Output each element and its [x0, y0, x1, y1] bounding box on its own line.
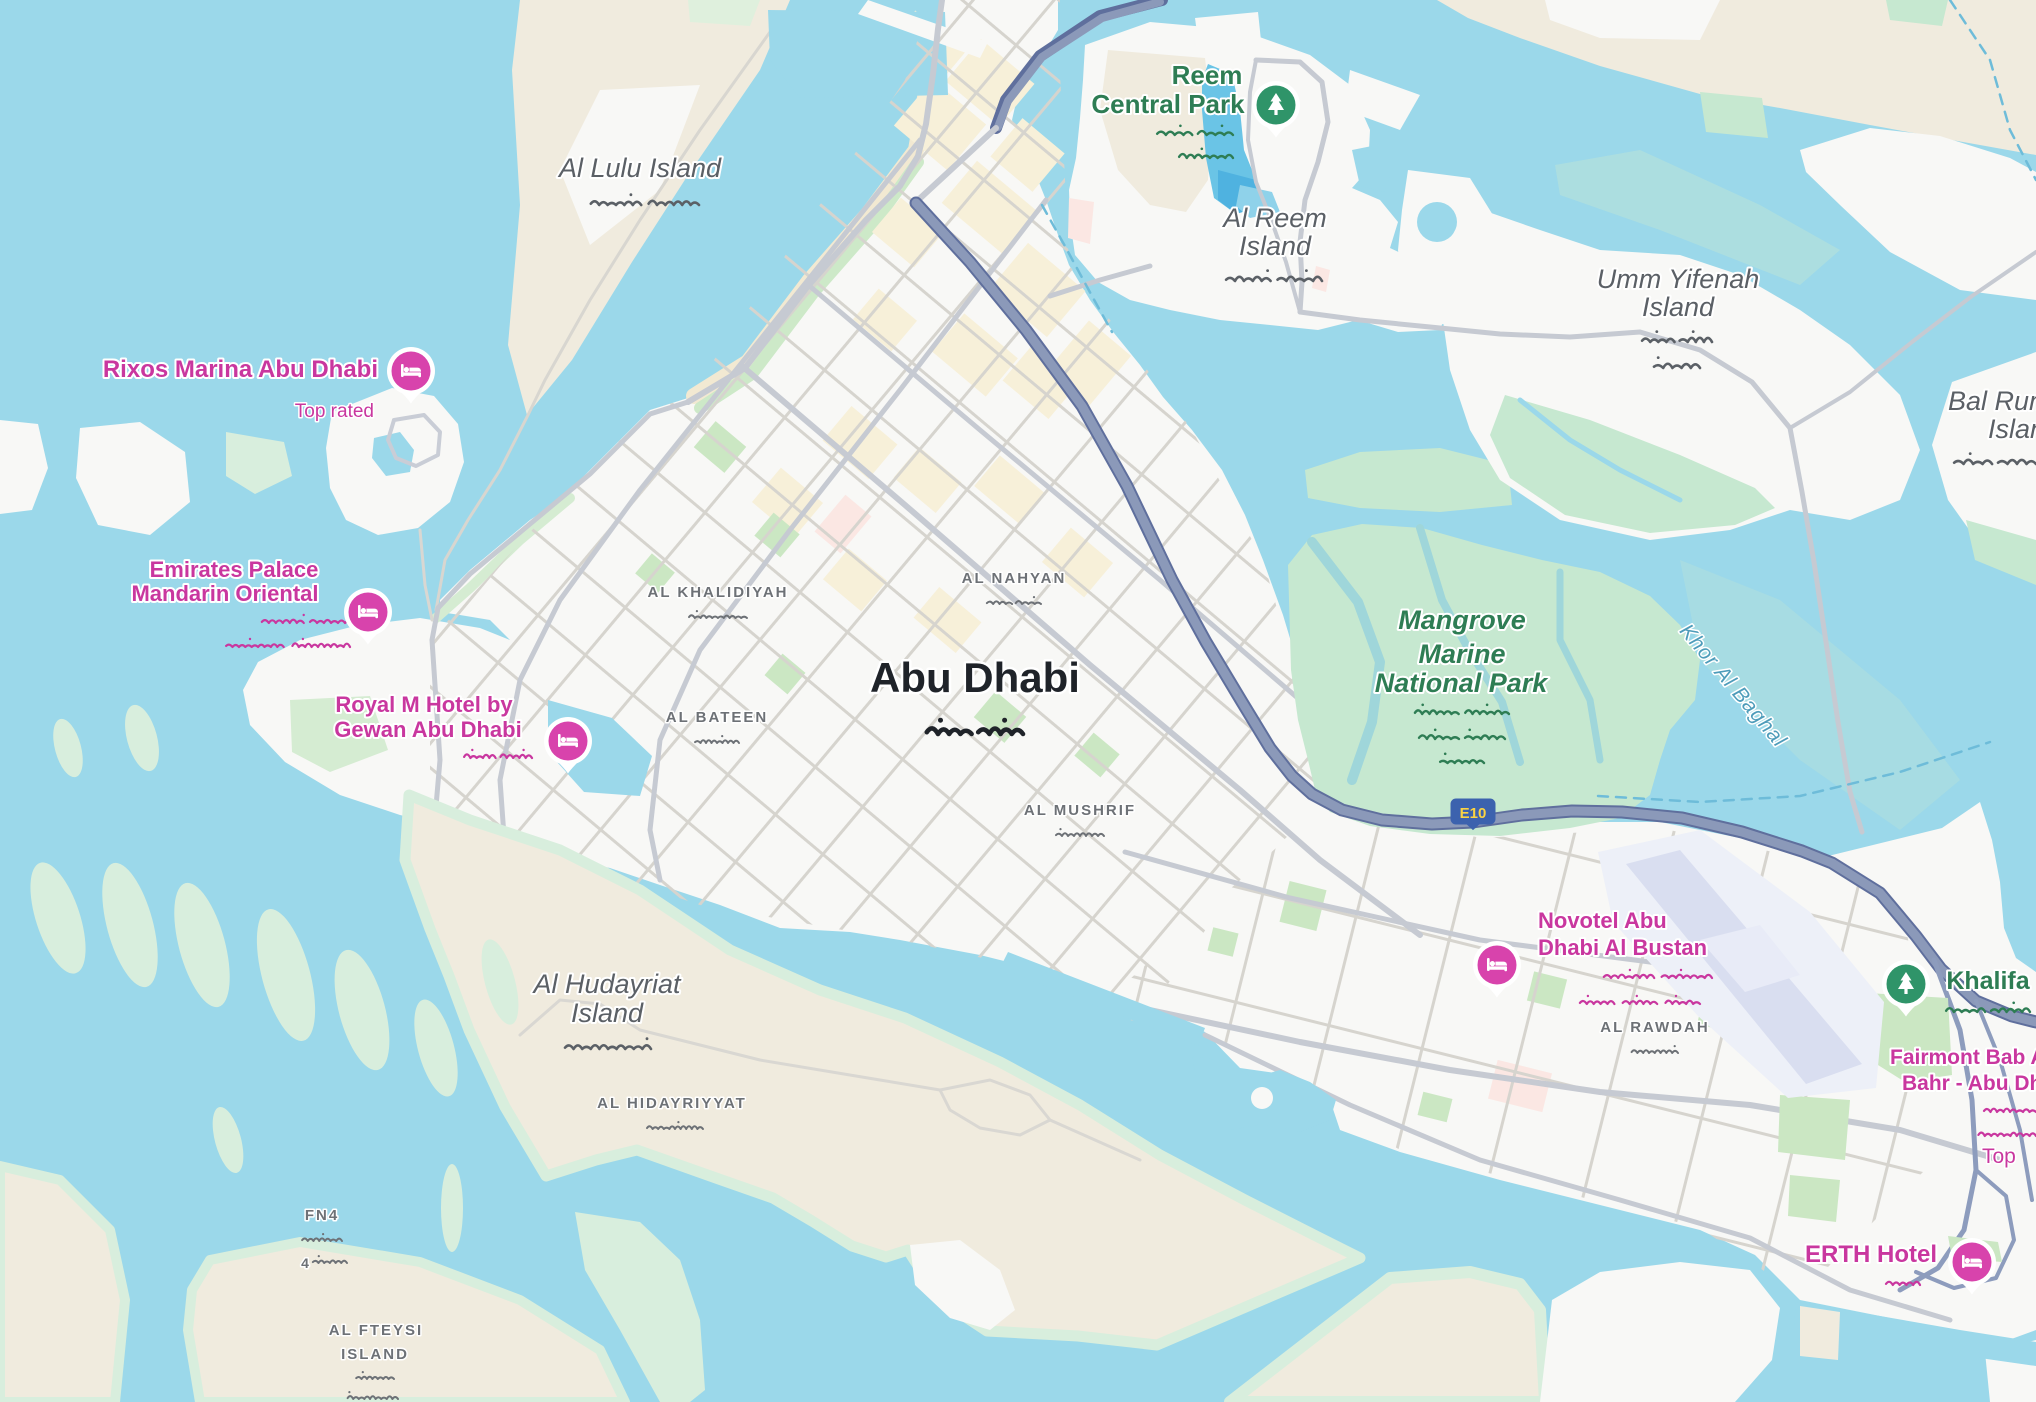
svg-text:Top rated: Top rated [295, 401, 374, 422]
svg-text:Marine: Marine [1418, 639, 1505, 669]
svg-text:Bahr - Abu Dhabi: Bahr - Abu Dhabi [1902, 1072, 2036, 1095]
svg-text:Bal Rumai: Bal Rumai [1948, 386, 2036, 416]
svg-text:Island: Island [1642, 292, 1715, 322]
svg-text:Mandarin Oriental: Mandarin Oriental [131, 581, 318, 606]
svg-text:Umm Yifenah: Umm Yifenah [1597, 264, 1760, 294]
svg-text:AL NAHYAN: AL NAHYAN [962, 570, 1067, 587]
svg-text:Gewan Abu Dhabi: Gewan Abu Dhabi [334, 717, 521, 742]
svg-text:Top: Top [1982, 1145, 2016, 1168]
svg-text:AL BATEEN: AL BATEEN [666, 709, 768, 726]
svg-text:Island: Island [1988, 414, 2036, 444]
svg-text:FN4: FN4 [305, 1207, 339, 1224]
svg-text:Royal M Hotel by: Royal M Hotel by [335, 692, 513, 717]
svg-text:AL KHALIDIYAH: AL KHALIDIYAH [647, 584, 788, 601]
svg-text:Al Lulu Island: Al Lulu Island [557, 153, 722, 183]
svg-text:Khalifa: Khalifa [1946, 967, 2030, 995]
svg-text:E10: E10 [1460, 805, 1487, 822]
svg-text:4: 4 [301, 1255, 309, 1271]
svg-text:ERTH Hotel: ERTH Hotel [1805, 1241, 1937, 1268]
svg-text:Island: Island [1239, 231, 1312, 261]
svg-text:AL MUSHRIF: AL MUSHRIF [1024, 802, 1136, 819]
svg-text:ISLAND: ISLAND [341, 1346, 409, 1363]
svg-text:National Park: National Park [1375, 668, 1550, 698]
svg-text:Fairmont Bab Al: Fairmont Bab Al [1890, 1046, 2036, 1069]
svg-text:Central Park: Central Park [1091, 89, 1245, 119]
svg-text:Mangrove: Mangrove [1398, 605, 1526, 635]
svg-text:Emirates Palace: Emirates Palace [150, 557, 319, 582]
svg-text:Al Reem: Al Reem [1221, 203, 1327, 233]
svg-text:Novotel Abu: Novotel Abu [1538, 908, 1667, 933]
svg-text:Al Hudayriat: Al Hudayriat [531, 969, 682, 999]
svg-text:AL FTEYSI: AL FTEYSI [329, 1322, 423, 1339]
svg-text:Island: Island [571, 998, 644, 1028]
svg-text:Reem: Reem [1172, 60, 1243, 90]
svg-text:AL RAWDAH: AL RAWDAH [1600, 1019, 1709, 1036]
svg-text:Rixos Marina Abu Dhabi: Rixos Marina Abu Dhabi [103, 356, 378, 383]
svg-text:Dhabi Al Bustan: Dhabi Al Bustan [1538, 935, 1707, 960]
svg-text:AL HIDAYRIYYAT: AL HIDAYRIYYAT [597, 1095, 747, 1112]
svg-text:Abu Dhabi: Abu Dhabi [870, 654, 1080, 701]
